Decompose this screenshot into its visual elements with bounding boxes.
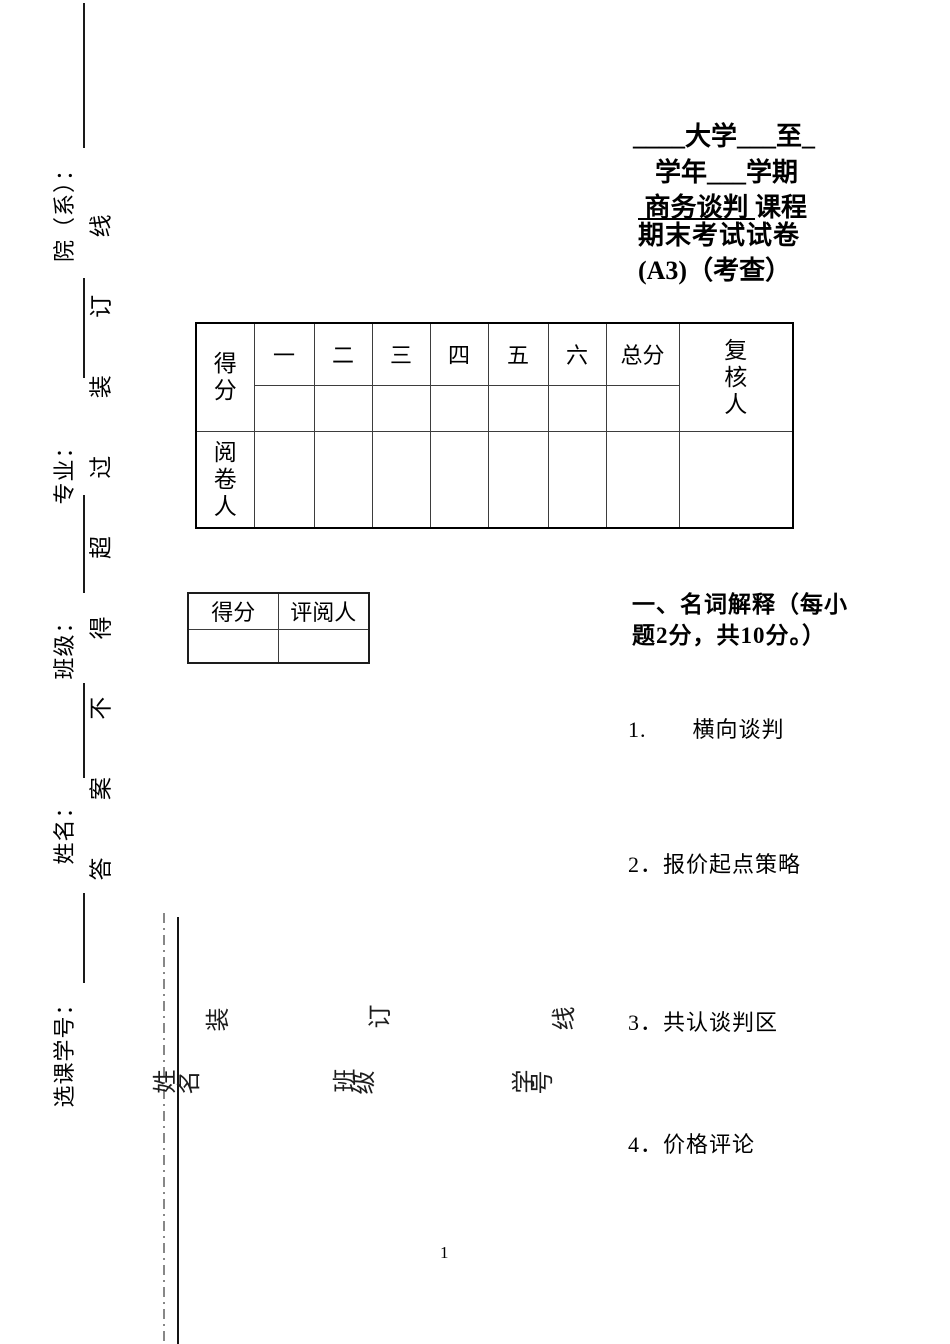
score-label-cell: 得分 <box>196 323 254 431</box>
binding-warning-char: 案 <box>81 777 115 800</box>
grader-entry-cell <box>488 431 548 528</box>
exam-title-line4: 期末考试试卷 <box>638 221 800 251</box>
binding-warning-text: 答 案 不 得 超 过 装 订 线 <box>85 215 112 881</box>
column-header-5: 五 <box>488 323 548 385</box>
binding-warning-char: 得 <box>81 616 115 639</box>
grader-entry-cell <box>254 431 314 528</box>
fold-dashdot-line <box>163 913 165 1344</box>
page-number: 1 <box>440 1243 449 1263</box>
fold-solid-line <box>177 917 179 1344</box>
total-score-entry-cell <box>606 385 679 431</box>
binding-warning-char: 线 <box>81 215 115 238</box>
reviewer-entry-cell <box>679 431 793 528</box>
margin-field-student-id: 选课学号： <box>51 988 75 1112</box>
fold-field-char-xing: 姓 <box>153 1068 180 1095</box>
course-name: 商务谈判 <box>638 193 755 222</box>
section-one-heading: 一、名词解释（每小题2分，共10分。） <box>632 589 848 651</box>
margin-field-name: 姓名： <box>51 790 75 870</box>
score-entry-cell <box>430 385 488 431</box>
sub-score-label: 得分 <box>188 593 278 629</box>
fold-binding-char-zhuang: 装 <box>206 1006 233 1033</box>
binding-warning-char: 订 <box>81 295 115 318</box>
field-blank-line <box>83 893 85 983</box>
heading-line1: 一、名词解释（每小 <box>632 592 848 617</box>
column-header-4: 四 <box>430 323 488 385</box>
exam-title-line5: (A3)（考查） <box>638 256 791 286</box>
fold-binding-char-xian: 线 <box>552 1005 579 1032</box>
exam-title-line2: 学年___学期 <box>655 158 798 188</box>
score-entry-cell <box>314 385 372 431</box>
heading-line2: 题2分，共10分。） <box>632 623 826 648</box>
column-header-6: 六 <box>548 323 606 385</box>
reviewer-label: 复核人 <box>721 337 750 418</box>
score-label: 得分 <box>211 350 240 404</box>
score-entry-cell <box>254 385 314 431</box>
grader-label-cell: 阅卷人 <box>196 431 254 528</box>
grader-entry-cell <box>606 431 679 528</box>
binding-warning-char: 答 <box>81 858 115 881</box>
exam-title-line3: 商务谈判 课程 <box>638 193 807 223</box>
binding-warning-char: 装 <box>81 375 115 398</box>
question-item-1: 1. 横向谈判 <box>628 712 785 744</box>
fold-field-char-ming: 名 <box>177 1069 204 1096</box>
reviewer-label-cell: 复核人 <box>679 323 793 431</box>
sub-marker-entry-cell <box>278 629 369 663</box>
grader-entry-cell <box>372 431 430 528</box>
score-entry-cell <box>488 385 548 431</box>
section-score-table: 得分 评阅人 <box>187 592 370 664</box>
binding-warning-char: 过 <box>81 456 115 479</box>
course-suffix: 课程 <box>755 193 807 222</box>
question-item-4: 4．价格评论 <box>628 1127 755 1159</box>
binding-warning-char: 超 <box>81 536 115 559</box>
score-entry-cell <box>548 385 606 431</box>
exam-title-line1: ____大学___至_ <box>633 122 815 152</box>
column-header-2: 二 <box>314 323 372 385</box>
fold-field-char-hao: 号 <box>530 1069 557 1096</box>
column-header-total: 总分 <box>606 323 679 385</box>
sub-marker-label: 评阅人 <box>278 593 369 629</box>
score-entry-cell <box>372 385 430 431</box>
grader-entry-cell <box>430 431 488 528</box>
margin-field-department: 院（系）： <box>51 150 75 270</box>
grader-label: 阅卷人 <box>211 439 240 520</box>
binding-warning-char: 不 <box>81 697 115 720</box>
fold-binding-char-ding: 订 <box>368 1003 395 1030</box>
fold-field-char-ji: 级 <box>352 1069 379 1096</box>
grader-entry-cell <box>314 431 372 528</box>
score-summary-table: 得分 一 二 三 四 五 六 总分 复核人 阅卷人 <box>195 322 794 529</box>
question-item-2: 2．报价起点策略 <box>628 847 801 879</box>
column-header-1: 一 <box>254 323 314 385</box>
margin-field-major: 专业： <box>51 430 75 510</box>
field-blank-line <box>83 3 85 148</box>
column-header-3: 三 <box>372 323 430 385</box>
exam-paper-page: ____大学___至_ 学年___学期 商务谈判 课程 期末考试试卷 (A3)（… <box>0 0 950 1344</box>
grader-entry-cell <box>548 431 606 528</box>
question-item-3: 3．共认谈判区 <box>628 1005 778 1037</box>
margin-field-class: 班级： <box>51 605 75 685</box>
sub-score-entry-cell <box>188 629 278 663</box>
